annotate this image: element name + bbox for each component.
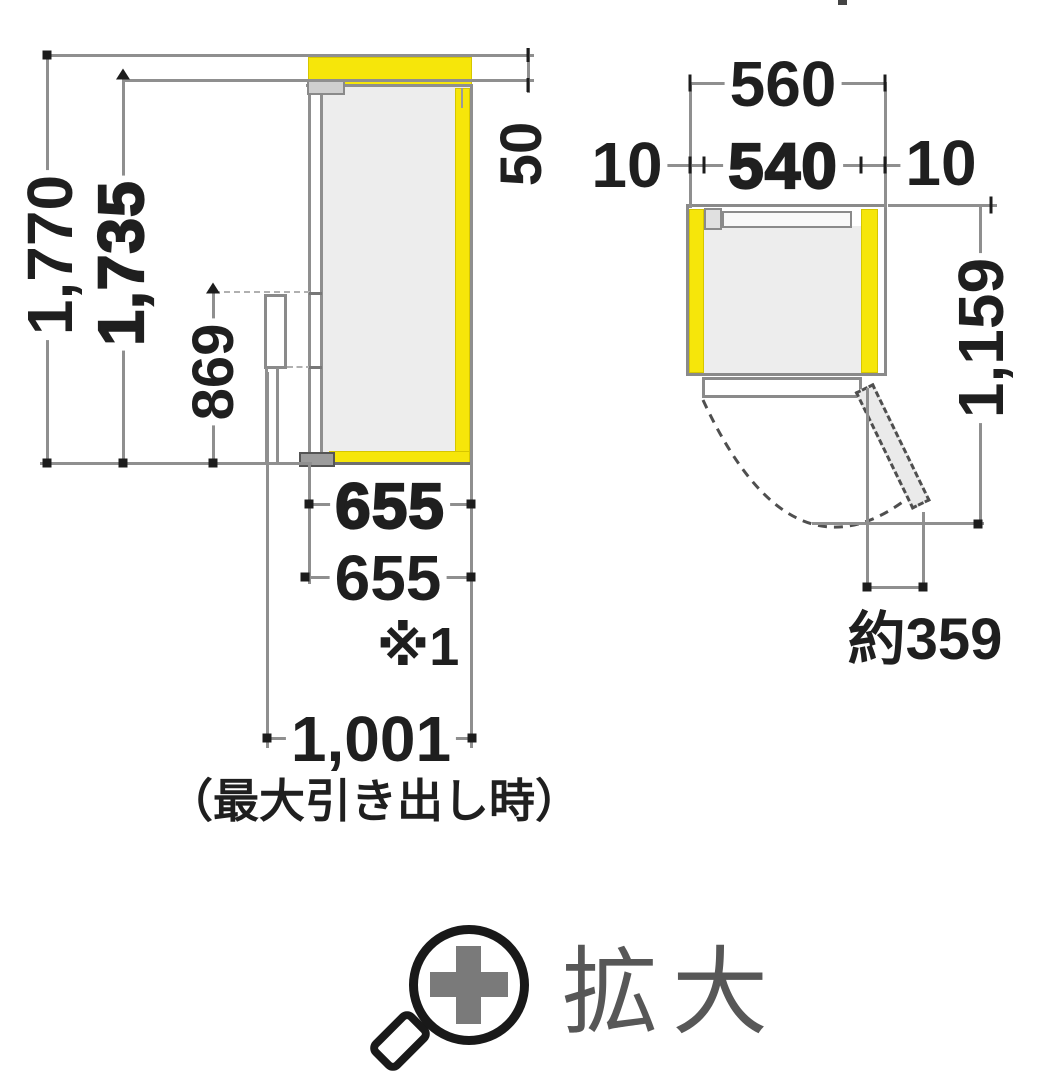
fridge-door-side (311, 88, 320, 462)
label-depth: 655 (330, 546, 447, 610)
label-drawer-open-depth: 1,001 (286, 707, 456, 771)
tick (863, 583, 872, 592)
fridge-body-side (322, 86, 470, 464)
tick-bar (860, 157, 863, 174)
tick (467, 500, 476, 509)
door-divider-mark-upper (309, 292, 322, 295)
label-footnote-ref: ※1 (372, 620, 465, 674)
arrowhead-up (206, 283, 220, 294)
label-depth-door-open: 1,159 (949, 253, 1013, 423)
side-clearance-rear-highlight (455, 88, 470, 452)
zoom-enlarge-label[interactable]: 拡大 (562, 915, 782, 1054)
tick (43, 51, 52, 60)
label-door-swing: 約359 (843, 611, 1008, 669)
label-height-total: 1,770 (18, 170, 82, 340)
fridge-interior-top (704, 226, 861, 373)
tick (919, 583, 928, 592)
tick (263, 734, 272, 743)
handle-top-dashed-line (214, 291, 310, 293)
tick-bar (689, 157, 692, 174)
ext-line-width-right (884, 82, 887, 208)
tick (43, 459, 52, 468)
ext-line-door-tip (922, 512, 925, 590)
label-drawer-open-caption: （最大引き出し時） (165, 778, 583, 824)
label-clearance-left: 10 (586, 133, 667, 197)
rear-panel-top (722, 211, 852, 228)
door-divider-mark-lower (309, 366, 322, 369)
tick-bar (884, 75, 887, 92)
ext-line-width-left (689, 82, 692, 208)
tick (119, 459, 128, 468)
label-height-handle: 869 (185, 319, 243, 426)
tick-bar (527, 78, 530, 92)
tick-bar (703, 157, 706, 174)
body-bottom-edge (318, 462, 473, 465)
dim-line-height-body (122, 79, 534, 82)
tick (468, 734, 477, 743)
rear-corner-detail (704, 208, 722, 230)
door-closed-top (702, 377, 862, 398)
label-height-body: 1,735 (89, 175, 153, 350)
floor-extension-line (40, 462, 312, 465)
top-hinge-cover (307, 80, 345, 95)
tick (301, 573, 310, 582)
installation-dimensions-diagram: 1,770 1,735 869 50 655 655 ※1 1,001 （最大引… (0, 0, 1056, 1080)
tick-bar (689, 75, 692, 92)
arrowhead-up (116, 69, 130, 80)
tick (467, 573, 476, 582)
drawer-front-edge-inner (276, 368, 279, 464)
dim-line-height-total (47, 54, 534, 57)
tick (974, 520, 983, 529)
plus-icon-bar (456, 946, 481, 1024)
door-front-edge (308, 88, 311, 464)
ext-line-front (308, 464, 311, 584)
door-handle-side (264, 294, 287, 369)
tick (305, 500, 314, 509)
tick-bar (527, 48, 530, 62)
top-clearance-left-highlight (689, 209, 704, 373)
ext-line-depth-bottom (812, 522, 984, 525)
ext-line-drawer-front (266, 372, 269, 748)
tick (209, 459, 218, 468)
tick-bar (990, 197, 993, 214)
label-depth-bold: 655 (330, 474, 450, 538)
label-width-total: 560 (725, 52, 842, 116)
label-clearance-right: 10 (900, 131, 981, 195)
tick-bar (884, 157, 887, 174)
cropped-mark (838, 0, 847, 5)
ext-line-hinge (866, 388, 869, 590)
top-clearance-right-highlight (861, 209, 878, 373)
label-clearance-top: 50 (493, 117, 551, 192)
door-inner-edge (320, 88, 323, 464)
label-width-body: 540 (723, 134, 843, 198)
rear-inner-mark (461, 88, 463, 108)
dim-line-door-swing (866, 586, 925, 589)
body-rear-edge (470, 86, 473, 464)
